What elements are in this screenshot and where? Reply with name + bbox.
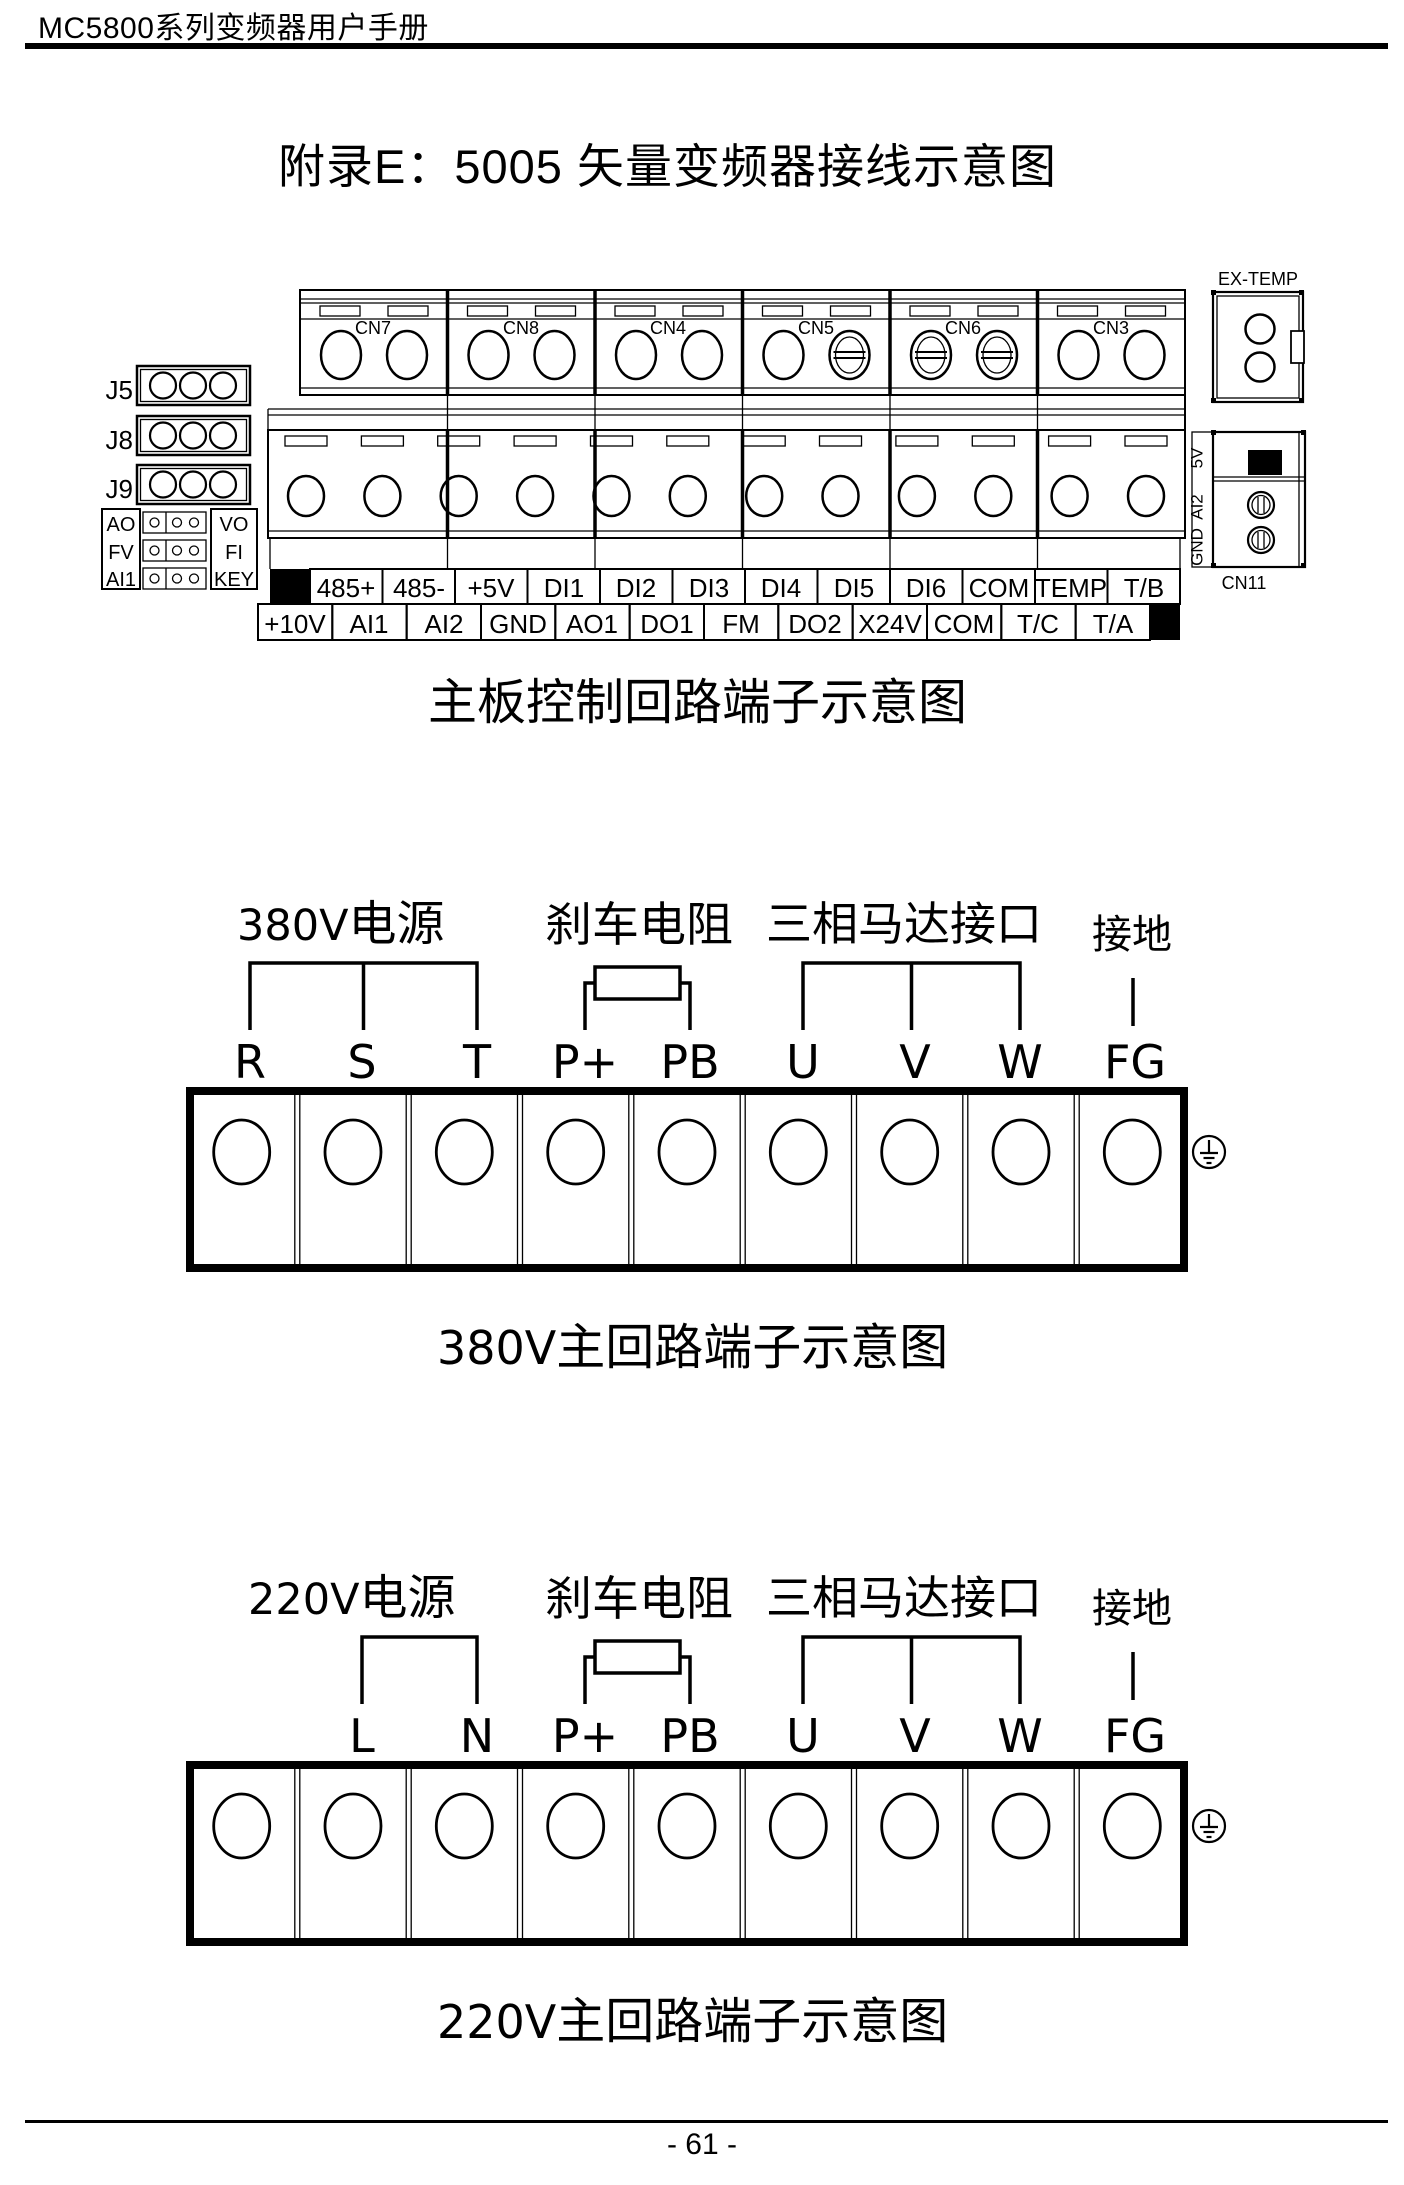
terminal-letter-v: V (899, 1035, 931, 1089)
connector-label-cn8: CN8 (503, 318, 539, 338)
cn11-pin-gnd: GND (1188, 528, 1207, 566)
terminal-block-380 (190, 1091, 1225, 1268)
terminal-label: TEMP (1035, 573, 1107, 603)
connector-label-cn4: CN4 (650, 318, 686, 338)
cn11-pin-5v: 5V (1188, 447, 1207, 468)
terminal-letter-w: W (997, 1035, 1042, 1089)
board-mid-band (268, 395, 1185, 430)
terminal-label: DI2 (616, 573, 656, 603)
io-label-vo: VO (220, 514, 249, 536)
terminal-label: +5V (468, 573, 516, 603)
jumper-label-j5: J5 (106, 375, 133, 405)
terminal-letter-pb: PB (660, 1709, 719, 1763)
connector-label-cn7: CN7 (355, 318, 391, 338)
terminal-letter-n: N (460, 1709, 494, 1763)
strip-terminal-holes (288, 476, 1164, 516)
terminal-letter-fg: FG (1104, 1035, 1166, 1089)
terminal-letter-v: V (899, 1709, 931, 1763)
io-jumper-select: AO FV AI1 VO FI KEY (102, 509, 257, 591)
wiring-brackets-380 (250, 963, 1133, 1030)
section-380v: R S T P+ PB U V W FG (190, 963, 1225, 1268)
terminal-letter-pb: PB (660, 1035, 719, 1089)
io-label-ao: AO (107, 514, 136, 536)
terminal-label: AO1 (566, 609, 618, 639)
cn11-label: CN11 (1222, 573, 1267, 593)
cn11-pin-ai2: AI2 (1188, 494, 1207, 520)
io-jumper-pins (143, 512, 206, 589)
ex-temp-connector: EX-TEMP (1211, 269, 1304, 403)
terminal-label: T/A (1093, 609, 1134, 639)
section-220v: L N P+ PB U V W FG (190, 1637, 1225, 1942)
block-dividers-220 (295, 1765, 1079, 1942)
block-holes-380 (214, 1120, 1161, 1184)
terminal-label: DO2 (788, 609, 841, 639)
brake-resistor-symbol-220 (595, 1641, 680, 1673)
terminal-label: COM (934, 609, 995, 639)
terminal-row-1: 485+ 485- +5V DI1 DI2 DI3 DI4 DI5 DI6 CO… (270, 569, 1180, 604)
wiring-diagram: CN7 CN8 CN4 CN5 CN6 CN3 (0, 0, 1404, 2185)
jumper-headers: J5 J8 J9 (106, 366, 250, 504)
io-label-fi: FI (225, 542, 243, 564)
io-label-ai1: AI1 (106, 569, 136, 591)
terminal-label: 485- (393, 573, 445, 603)
earth-symbol-220 (1193, 1810, 1225, 1842)
terminal-label: DO1 (640, 609, 693, 639)
terminal-letter-u: U (786, 1035, 820, 1089)
block-dividers-380 (295, 1091, 1079, 1268)
terminal-label: FM (722, 609, 760, 639)
wiring-brackets-220 (362, 1637, 1133, 1704)
top-connector-rail: CN7 CN8 CN4 CN5 CN6 CN3 (300, 290, 1185, 395)
terminal-label: DI5 (834, 573, 874, 603)
terminal-letter-p-plus: P+ (552, 1709, 618, 1763)
jumper-label-j8: J8 (106, 425, 133, 455)
terminal-label: AI2 (424, 609, 463, 639)
jumper-label-j9: J9 (106, 474, 133, 504)
terminal-label: X24V (858, 609, 922, 639)
ex-temp-label: EX-TEMP (1218, 269, 1298, 289)
connector-label-cn6: CN6 (945, 318, 981, 338)
brake-resistor-symbol-380 (595, 967, 680, 999)
connector-label-cn3: CN3 (1093, 318, 1129, 338)
terminal-letter-t: T (462, 1035, 492, 1089)
terminal-block-220 (190, 1765, 1225, 1942)
terminal-letter-r: R (234, 1035, 266, 1089)
terminal-label: DI6 (906, 573, 946, 603)
terminal-label: +10V (264, 609, 326, 639)
terminal-label: COM (969, 573, 1030, 603)
io-label-key: KEY (214, 569, 254, 591)
terminal-letter-fg: FG (1104, 1709, 1166, 1763)
terminal-label: T/C (1017, 609, 1059, 639)
terminal-label: DI4 (761, 573, 801, 603)
io-label-fv: FV (108, 542, 134, 564)
lower-terminal-strip (268, 430, 1185, 569)
connector-label-cn5: CN5 (798, 318, 834, 338)
terminal-letter-p-plus: P+ (552, 1035, 618, 1089)
terminal-label: T/B (1124, 573, 1164, 603)
terminal-label: AI1 (349, 609, 388, 639)
earth-symbol-380 (1193, 1136, 1225, 1168)
terminal-label: DI1 (544, 573, 584, 603)
terminal-letter-w: W (997, 1709, 1042, 1763)
terminal-label: DI3 (689, 573, 729, 603)
strip-slots (285, 436, 1167, 446)
terminal-letter-u: U (786, 1709, 820, 1763)
terminal-letter-s: S (347, 1035, 376, 1089)
terminal-label: 485+ (317, 573, 376, 603)
terminal-row-2: +10V AI1 AI2 GND AO1 DO1 FM DO2 X24V COM… (258, 604, 1180, 640)
terminal-label: GND (489, 609, 547, 639)
terminal-letter-l: L (349, 1709, 375, 1763)
block-holes-220 (214, 1794, 1161, 1858)
cn11-connector: 5V AI2 GND CN11 (1188, 430, 1307, 593)
